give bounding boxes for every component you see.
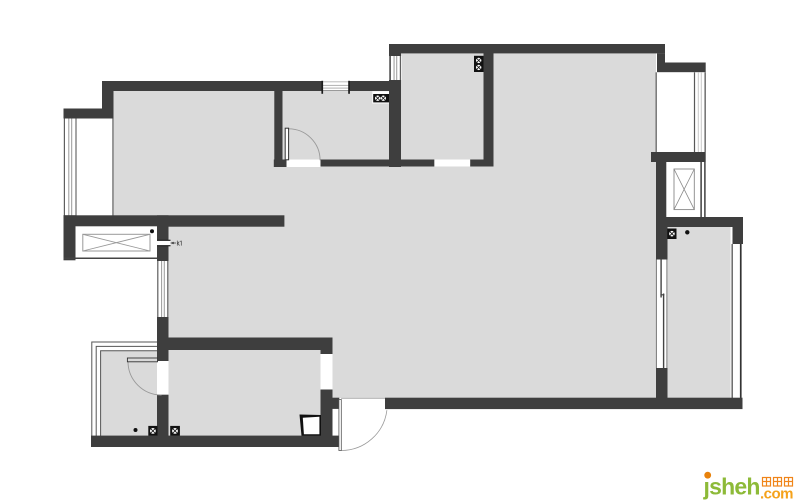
svg-text:.com: .com	[760, 486, 793, 500]
